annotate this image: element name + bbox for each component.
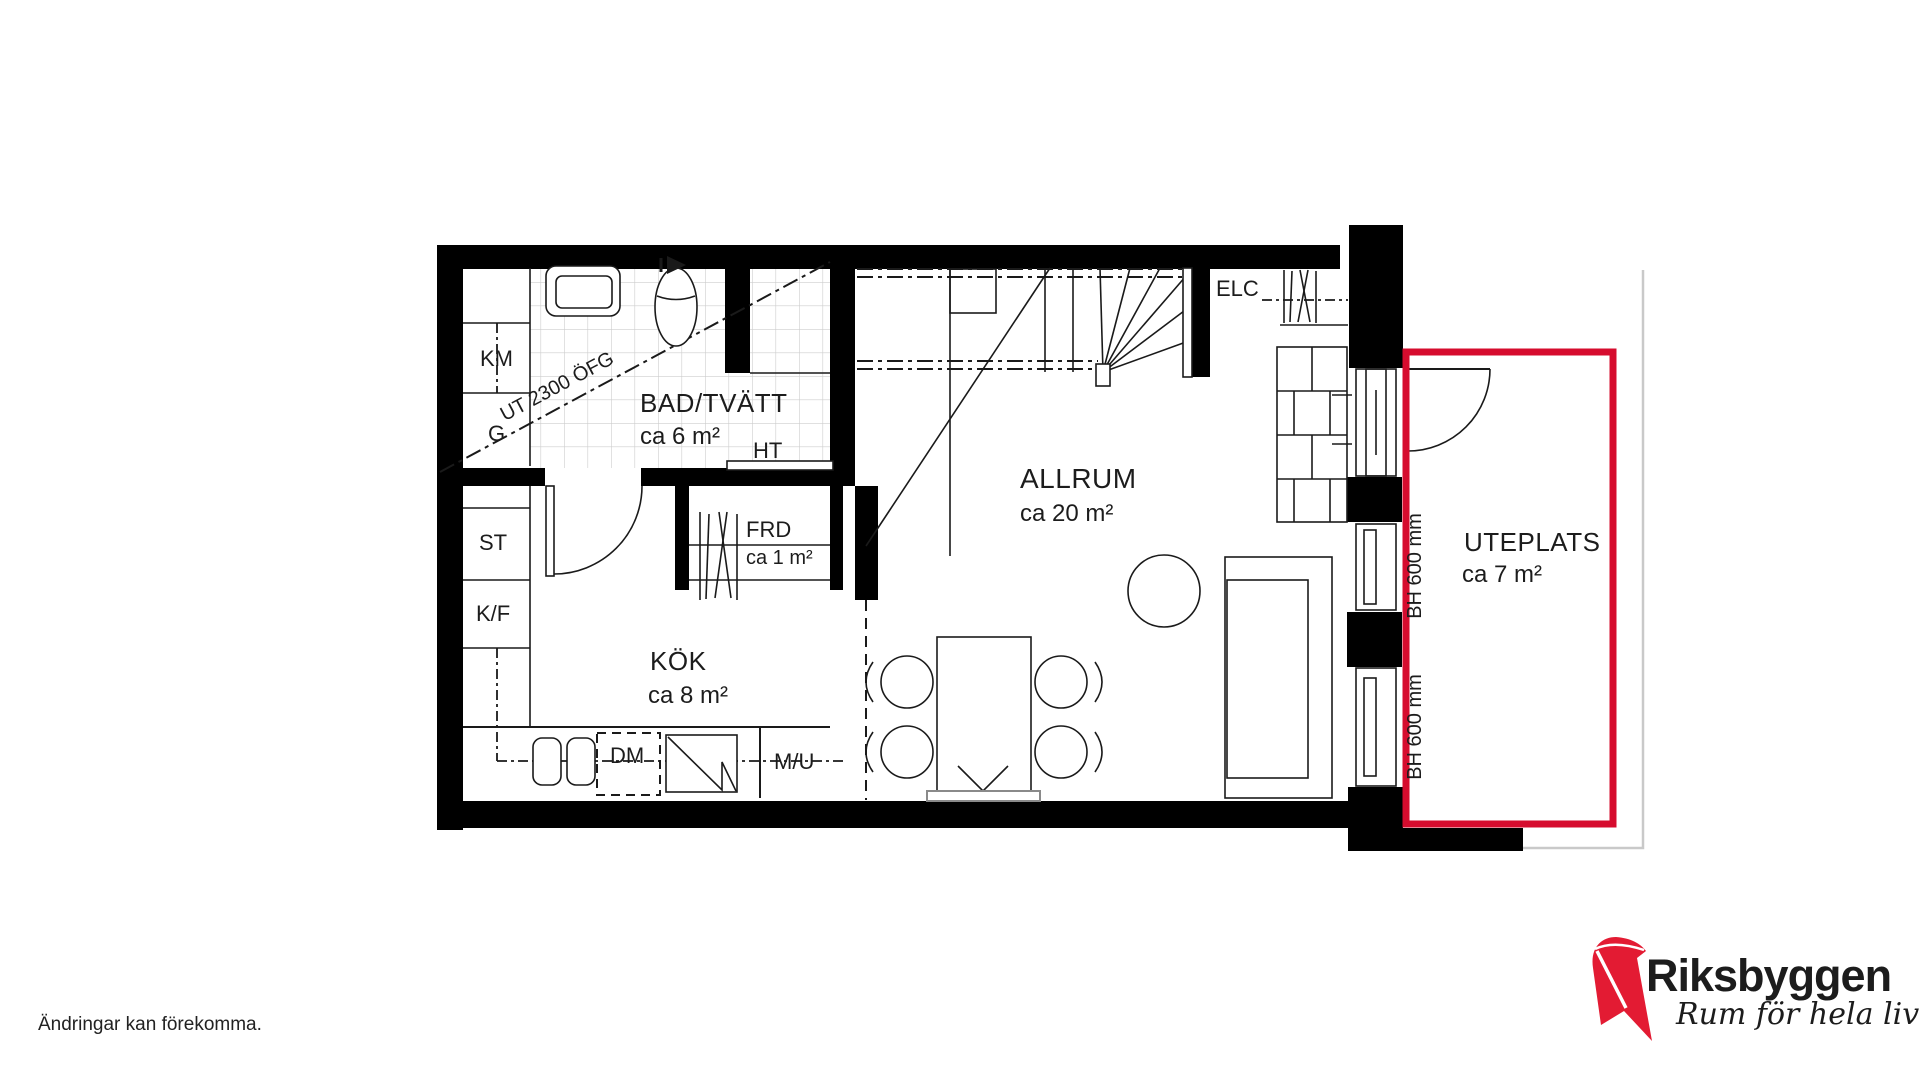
window-upper-icon: [1356, 524, 1396, 610]
room-area-patio: ca 7 m²: [1462, 561, 1542, 588]
elc-hatch-icon: [1284, 270, 1316, 323]
label-fridge-freezer: K/F: [476, 601, 510, 626]
label-washing-machine: KM: [480, 346, 513, 371]
room-area-bathroom: ca 6 m²: [640, 423, 720, 450]
room-label-kitchen: KÖK: [650, 646, 707, 676]
floorplan-canvas: BAD/TVÄTT ca 6 m² HT KM G ST K/F KÖK ca …: [0, 0, 1920, 1080]
brand-tagline: Rum för hela livet: [1675, 997, 1920, 1032]
door-swing-arc: [1408, 369, 1490, 451]
window-sill-bottom: [927, 791, 1040, 801]
room-label-storage: FRD: [746, 517, 791, 542]
room-area-living: ca 20 m²: [1020, 500, 1113, 527]
brand-name: Riksbyggen: [1646, 950, 1891, 1001]
riksbyggen-logo-mark: [1593, 937, 1652, 1041]
chimney-shaft-icon: [1277, 347, 1347, 522]
chair-icon: [866, 656, 948, 708]
electrical-cabinet: [1262, 270, 1348, 325]
stair-stringer: [1183, 268, 1192, 377]
dining-set: [866, 637, 1102, 797]
stove-icon: [666, 735, 737, 792]
dining-table-icon: [937, 637, 1031, 797]
winder-treads: [1100, 268, 1188, 372]
label-cleaning-cabinet: ST: [479, 530, 507, 555]
label-micro-oven: M/U: [774, 749, 814, 774]
room-label-bathroom: BAD/TVÄTT: [640, 388, 788, 418]
sill-height-upper: BH 600 mm: [1404, 513, 1426, 619]
label-wardrobe: G: [488, 421, 505, 446]
label-dishwasher: DM: [610, 743, 644, 768]
patio-door-icon: [1332, 369, 1490, 476]
sill-height-lower: BH 600 mm: [1404, 674, 1426, 780]
chair-icon: [1020, 726, 1102, 778]
room-area-storage: ca 1 m²: [746, 547, 813, 569]
room-area-kitchen: ca 8 m²: [648, 682, 728, 709]
chair-icon: [866, 726, 948, 778]
label-towel-dryer: HT: [753, 438, 782, 463]
sofa-icon: [1225, 557, 1332, 798]
washbasin-icon: [546, 266, 620, 316]
room-label-living: ALLRUM: [1020, 463, 1137, 494]
toilet-icon: [655, 268, 697, 346]
label-electrical-cabinet: ELC: [1216, 276, 1259, 301]
chair-icon: [1020, 656, 1102, 708]
riksbyggen-logo: Riksbyggen Rum för hela livet: [1593, 937, 1920, 1041]
bathroom-door-icon: [546, 486, 642, 576]
clothes-rail-hatch-icon: [700, 512, 737, 600]
disclaimer-text: Ändringar kan förekomma.: [38, 1014, 262, 1035]
side-table-icon: [1128, 555, 1200, 627]
floorplan-page: BAD/TVÄTT ca 6 m² HT KM G ST K/F KÖK ca …: [0, 0, 1920, 1080]
building-outline-extension: [1403, 270, 1643, 848]
stair-newel: [1096, 364, 1110, 386]
window-lower-icon: [1356, 668, 1396, 786]
patio-highlight-box: [1406, 352, 1613, 824]
room-label-patio: UTEPLATS: [1464, 527, 1600, 557]
